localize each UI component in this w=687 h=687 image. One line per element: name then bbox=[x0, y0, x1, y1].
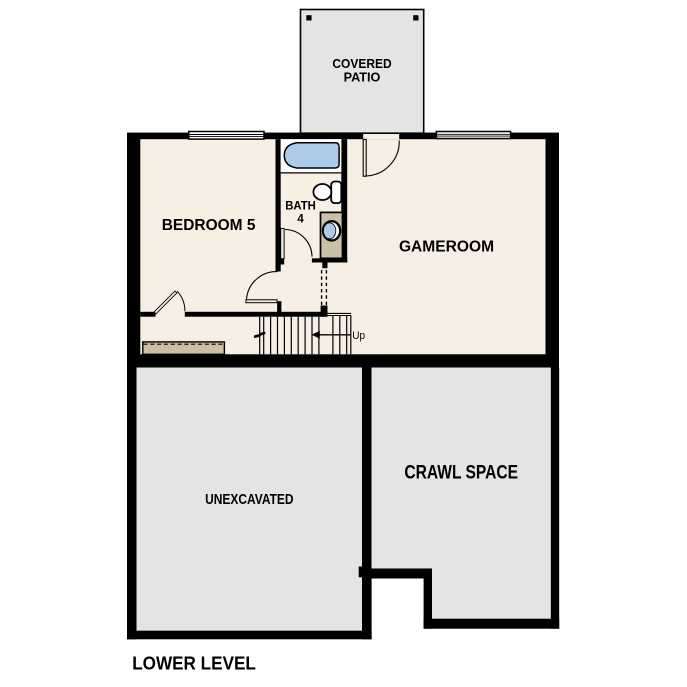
svg-text:UNEXCAVATED: UNEXCAVATED bbox=[205, 492, 294, 508]
svg-text:LOWER LEVEL: LOWER LEVEL bbox=[132, 653, 256, 674]
svg-text:CRAWL SPACE: CRAWL SPACE bbox=[404, 461, 518, 483]
svg-text:BEDROOM 5: BEDROOM 5 bbox=[162, 217, 256, 234]
svg-text:4: 4 bbox=[297, 213, 304, 226]
svg-text:GAMEROOM: GAMEROOM bbox=[399, 238, 494, 255]
svg-text:BATH: BATH bbox=[285, 199, 316, 212]
svg-text:Up: Up bbox=[352, 330, 365, 342]
svg-text:PATIO: PATIO bbox=[344, 70, 381, 85]
